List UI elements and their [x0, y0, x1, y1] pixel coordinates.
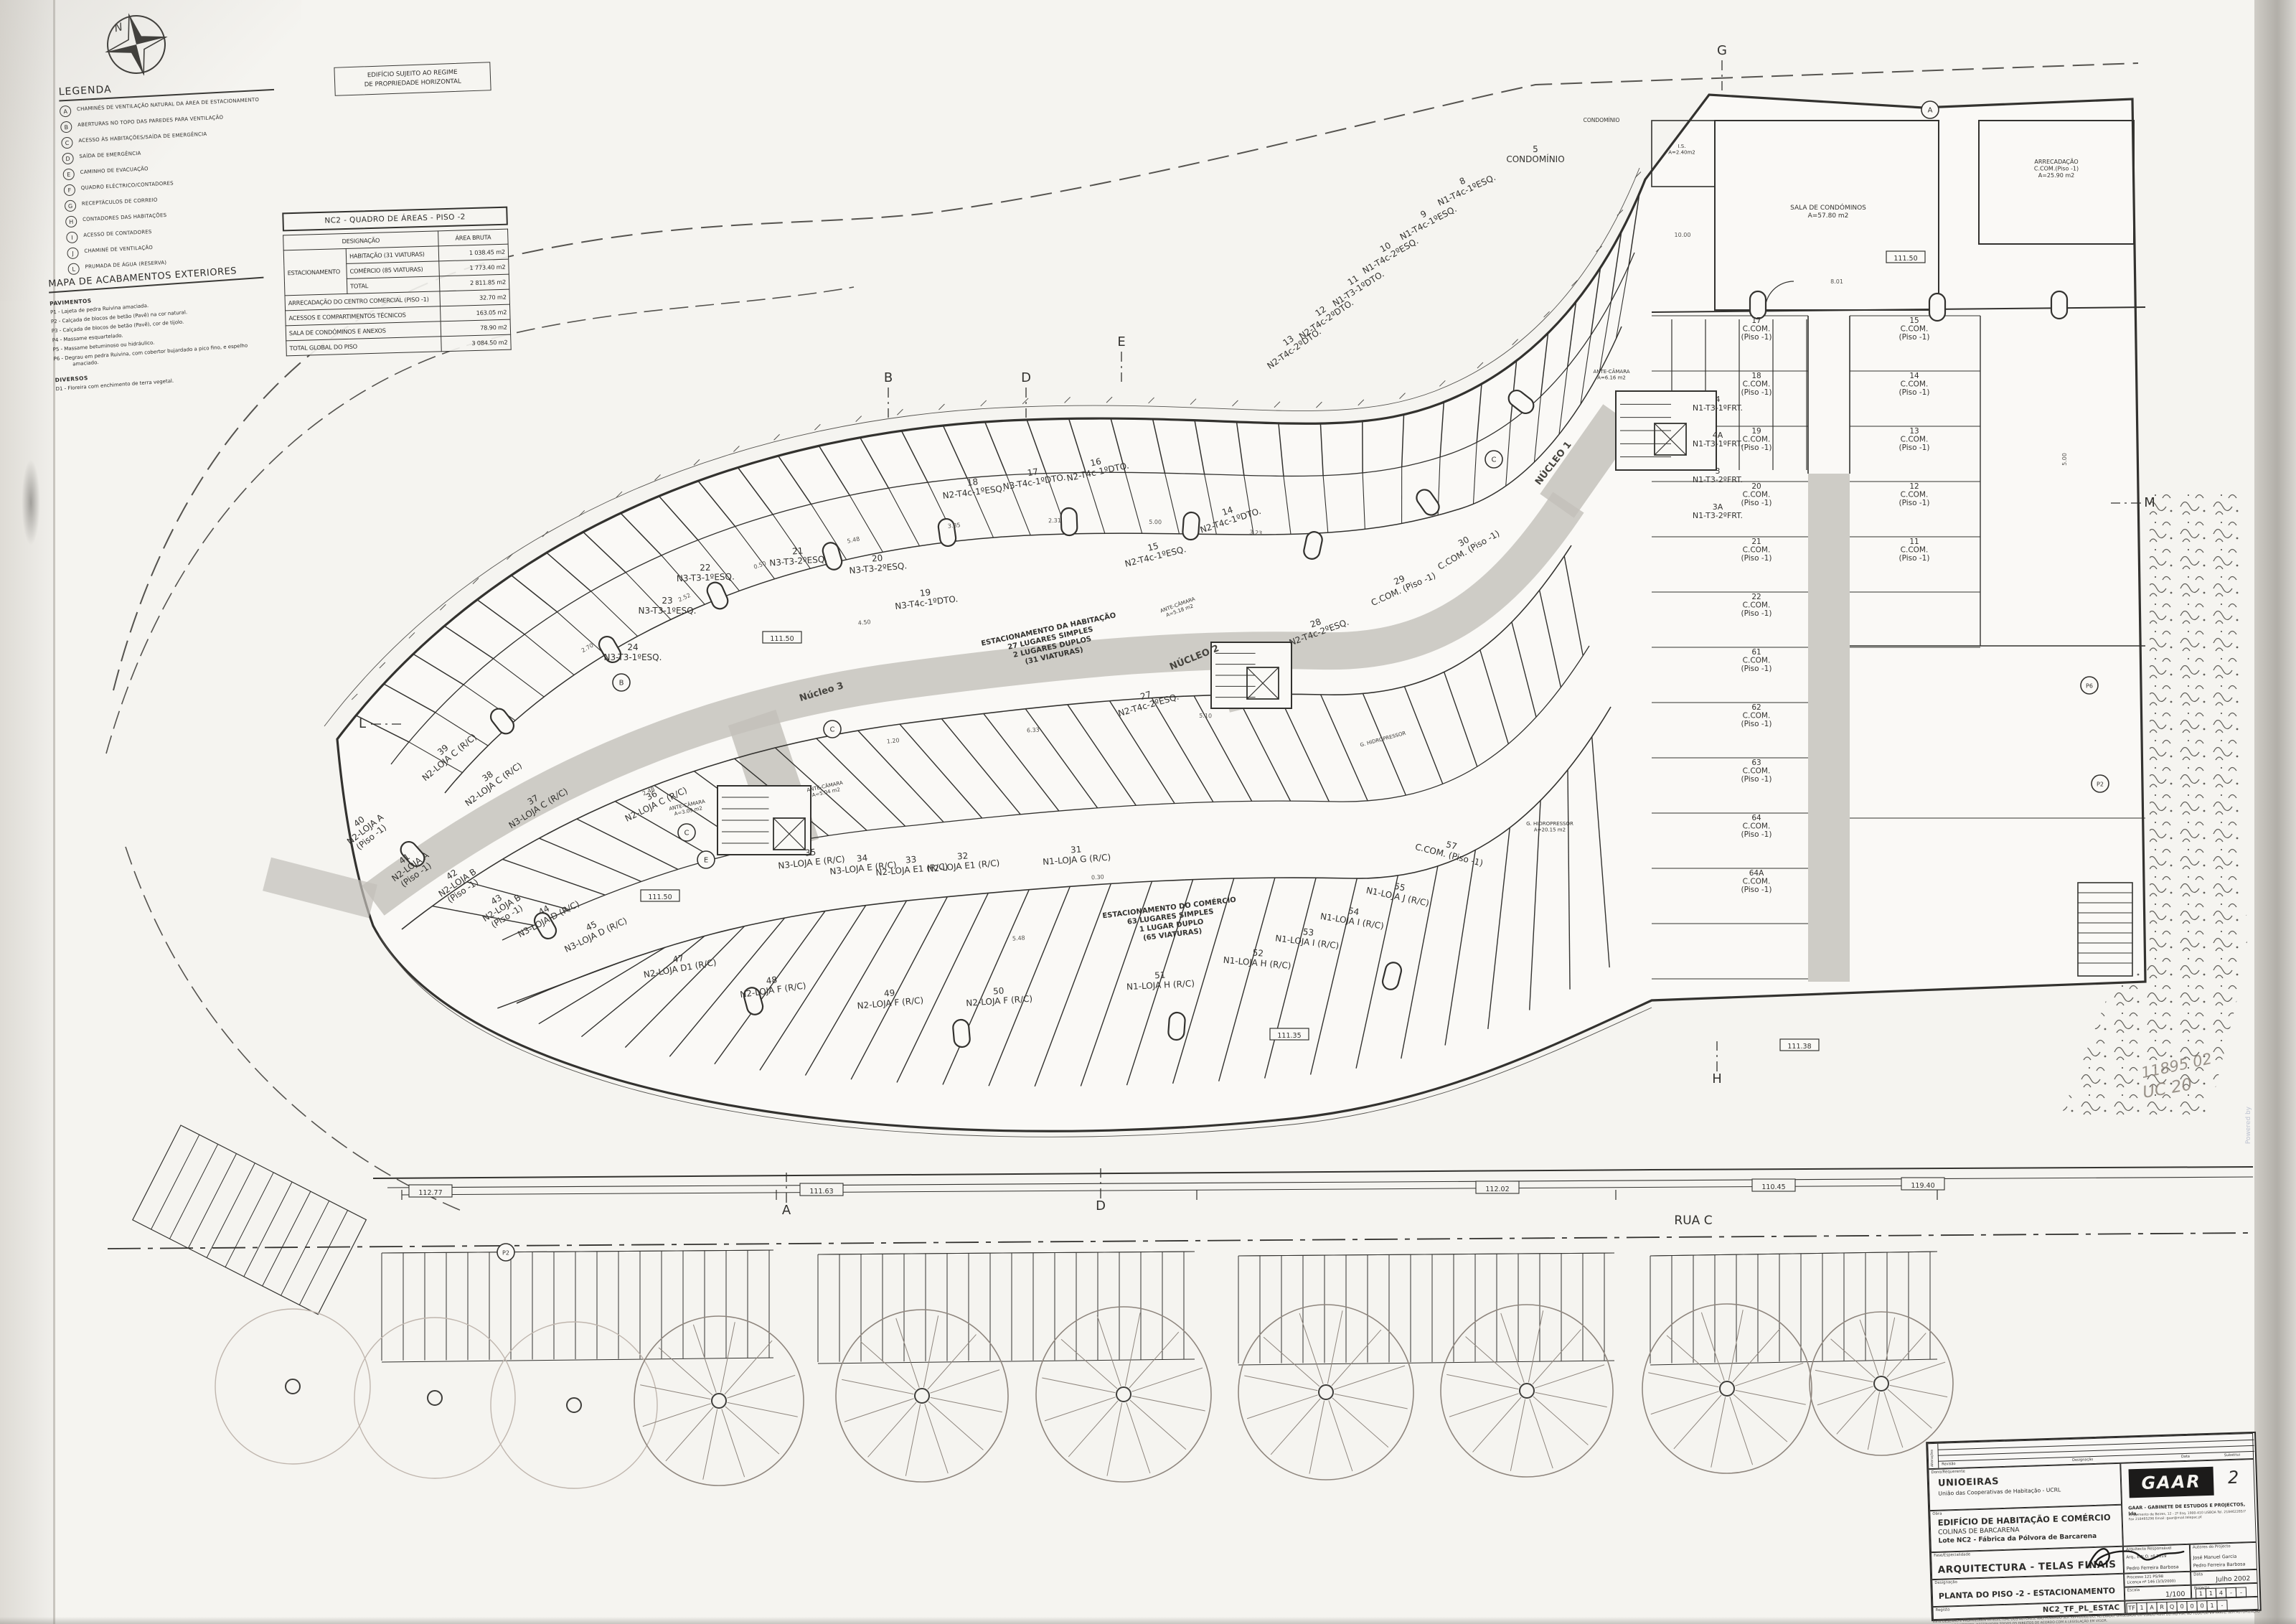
plan-line — [1244, 1376, 1317, 1391]
dimension-chain-tick — [1232, 400, 1238, 406]
dimension-chain-tick — [1149, 398, 1154, 403]
plan-line — [1327, 1310, 1342, 1384]
label-line: C.COM. — [1901, 436, 1929, 444]
ventilation-opening — [1750, 291, 1766, 319]
gaar-logo: GAAR — [2129, 1467, 2214, 1498]
tree — [491, 1322, 657, 1488]
legend-item-text: SAÍDA DE EMERGÊNCIA — [79, 149, 141, 159]
plan-line — [263, 1191, 311, 1286]
street-parking-row — [382, 1358, 773, 1362]
label-line: C.COM. — [1743, 380, 1771, 389]
tree — [1810, 1312, 1953, 1455]
dimension-value: 1.20 — [886, 737, 900, 745]
plan-line — [1329, 1400, 1352, 1471]
dimension-value: 3.23 — [1249, 529, 1263, 537]
property-regime-note: EDIFÍCIO SUJEITO AO REGIMEDE PROPRIEDADE… — [334, 62, 491, 95]
label-line: 19 — [1751, 427, 1761, 436]
label-line: L — [359, 716, 366, 731]
ventilation-opening — [2051, 291, 2067, 319]
label-line: (Piso -1) — [1741, 775, 1772, 784]
label-line: (Piso -1) — [1741, 554, 1772, 563]
label-line: (Piso -1) — [1741, 609, 1772, 618]
plan-line — [1883, 1318, 1894, 1375]
dimension-chain-tick — [507, 554, 513, 560]
street-name: RUA C — [1674, 1214, 1712, 1228]
author-1: José Manuel Garcia — [2193, 1553, 2256, 1561]
label-line: N3-T3-1ºESQ. — [604, 652, 662, 662]
plan-circle — [1238, 1305, 1413, 1480]
plan-line — [1667, 1336, 1721, 1383]
ventilation-opening — [1929, 294, 1945, 321]
label-line: 1.20 — [886, 737, 900, 745]
label-line: (Piso -1) — [1899, 333, 1930, 342]
plan-line — [1107, 1403, 1122, 1476]
grid-letter: D — [1096, 1198, 1106, 1214]
plan-line — [1042, 1378, 1115, 1393]
label-line: N2-T4c-2ºDTO. — [1265, 327, 1322, 371]
tree — [215, 1309, 370, 1464]
label-line: SALA DE CONDÓMINOS — [1790, 203, 1866, 212]
plan-line — [1868, 1392, 1879, 1450]
dimension-value: 3.85 — [947, 522, 961, 530]
label-line: 8.01 — [1830, 278, 1843, 285]
plan-line — [1473, 1397, 1522, 1452]
margin-stamp: 21 do Req/Reg nº — [2269, 998, 2277, 1054]
areas-cell: 1 773.40 m2 — [439, 259, 509, 276]
ventilation-opening — [952, 1019, 970, 1048]
dimension-value: 5.48 — [1012, 934, 1025, 942]
areas-cell: 2 811.85 m2 — [439, 274, 509, 291]
revision-col-data: Data — [2181, 1455, 2190, 1459]
ramp-walkway — [267, 874, 373, 901]
label-line: A=57.80 m2 — [1808, 212, 1849, 220]
label-line: N1-T4c-1ºESQ. — [1398, 204, 1459, 242]
plan-line — [931, 1397, 1002, 1412]
label-line: N1-T3-1ºDTO. — [1331, 269, 1386, 309]
areas-table-grid: DESIGNAÇÃOÁREA BRUTAESTACIONAMENTOHABITA… — [283, 229, 512, 357]
ventilation-opening — [1060, 508, 1077, 536]
plan-line — [1730, 1397, 1753, 1465]
label-line: CONDOMÍNIO — [1584, 117, 1620, 123]
label-line: 12 — [1909, 482, 1919, 491]
tree — [1642, 1304, 1812, 1473]
label-line: C.COM. — [1743, 878, 1771, 886]
legend-item-text: ABERTURAS NO TOPO DAS PAREDES PARA VENTI… — [77, 113, 224, 128]
dimension-value: 5.00 — [1149, 519, 1162, 526]
legend-item-key: A — [60, 105, 72, 118]
label-line: C.COM.(Piso -1) — [2034, 166, 2079, 172]
circled-ref-label: C — [1492, 456, 1497, 464]
plan-circle — [836, 1310, 1008, 1482]
label-line: C.COM. — [1743, 546, 1771, 555]
label-line: C.COM. — [1901, 380, 1929, 389]
plan-circle — [491, 1322, 657, 1488]
label-line: 10.00 — [1675, 232, 1691, 238]
plan-line — [722, 1409, 745, 1477]
firm-cell: GAAR 2 GAAR - GABINETE DE ESTUDOS E PROJ… — [2120, 1459, 2257, 1546]
areas-cell: 3 084.50 m2 — [441, 334, 512, 352]
plan-line — [1711, 1397, 1726, 1468]
dimension-chain-tick — [409, 632, 415, 638]
label-line: 111.63 — [809, 1188, 833, 1196]
street-parking-row — [818, 1359, 1195, 1363]
author-2: Pedro Ferreira Barbosa — [2193, 1561, 2257, 1569]
plan-circle — [1116, 1387, 1131, 1402]
street-dimension: 112.02 — [1485, 1186, 1509, 1193]
plan-line — [727, 1375, 795, 1398]
code-box: - — [2216, 1600, 2227, 1610]
label-line: C.COM. — [1743, 822, 1771, 831]
label-line: 119.40 — [1911, 1182, 1934, 1190]
dimension-chain-tick — [1635, 172, 1641, 178]
plan-line — [1125, 1313, 1140, 1386]
label-line: 31 — [1071, 844, 1082, 855]
plan-line — [1271, 1399, 1320, 1455]
designation-value: PLANTA DO PISO -2 - ESTACIONAMENTO — [1939, 1586, 2124, 1601]
dimension-chain-tick — [1022, 398, 1028, 404]
label-line: (Piso -1) — [1899, 499, 1930, 507]
plan-line — [1449, 1394, 1519, 1417]
stair-core — [1211, 642, 1291, 708]
label-line: A — [1928, 107, 1933, 115]
label-line: 5.00 — [2061, 453, 2068, 466]
plan-circle — [1036, 1307, 1211, 1482]
plan-line — [225, 1173, 273, 1267]
plan-line — [1533, 1397, 1588, 1445]
dimension-value: 5.00 — [2061, 453, 2068, 466]
plan-line — [1132, 1396, 1205, 1411]
plan-line — [1335, 1394, 1408, 1409]
label-line: 111.35 — [1277, 1032, 1301, 1040]
circled-ref-label: P6 — [2086, 683, 2093, 690]
tree — [634, 1316, 804, 1485]
street-edge — [1650, 1167, 2253, 1170]
label-line: N1-T4c-2ºESQ. — [1361, 236, 1421, 276]
label-line: C.COM. — [1743, 491, 1771, 499]
label-line: 5.48 — [1012, 934, 1025, 942]
drawing-sheet: { "sheet": { "north_label": "N", "horizo… — [0, 0, 2296, 1624]
areas-cell: ESTACIONAMENTO — [283, 248, 347, 295]
plan-line — [1332, 1330, 1381, 1386]
label-line: C — [684, 830, 690, 837]
label-line: P6 — [2086, 683, 2093, 690]
plan-line — [1130, 1400, 1186, 1450]
label-line: 17 — [1751, 316, 1761, 325]
label-line: (Piso -1) — [1741, 665, 1772, 673]
label-line: 4.50 — [857, 619, 871, 626]
authors-cell: Autores do Projecto José Manuel Garcia P… — [2190, 1542, 2257, 1572]
plan-line — [1045, 1397, 1116, 1421]
label-line: C.COM. — [1901, 546, 1929, 555]
plan-line — [728, 1402, 798, 1417]
label-line: (Piso -1) — [1741, 443, 1772, 452]
circled-ref-label: E — [704, 857, 708, 865]
finishes-panel: MAPA DE ACABAMENTOS EXTERIORES PAVIMENTO… — [48, 264, 270, 393]
areas-cell: ÁREA BRUTA — [438, 229, 509, 246]
room-label: ARRECADAÇÃOC.COM.(Piso -1)A=25.90 m2 — [2034, 158, 2079, 179]
scale-value: 1/100 — [2165, 1590, 2191, 1599]
plan-line — [299, 1210, 347, 1305]
plan-circle — [1874, 1376, 1888, 1391]
plan-line — [1530, 1399, 1553, 1468]
label-line: N1-T3-2ºFRT. — [1693, 475, 1743, 484]
stall-label: 5CONDOMÍNIO — [1506, 144, 1564, 164]
legend-item-key: D — [62, 153, 74, 165]
stair-core — [717, 786, 811, 855]
plan-line — [928, 1402, 983, 1450]
label-line: 50 — [993, 985, 1004, 996]
circled-ref-label: P2 — [2097, 782, 2104, 788]
street-edge — [373, 1170, 1650, 1178]
grid-letter: G — [1717, 43, 1727, 58]
dimension-chain-tick — [1190, 399, 1196, 405]
dimension-chain-tick — [1316, 402, 1322, 408]
legend-panel: LEGENDA ACHAMINÉS DE VENTILAÇÃO NATURAL … — [58, 75, 297, 275]
level-marker: 111.50 — [770, 635, 794, 643]
label-line: 23 — [662, 596, 672, 606]
circled-ref-label: P2 — [502, 1250, 509, 1257]
label-line: 111.50 — [1893, 255, 1917, 263]
label-line: C.COM. — [1743, 657, 1771, 665]
plan-line — [169, 1144, 217, 1239]
client-label: Dono/Requerente — [1931, 1470, 1965, 1475]
label-line: H — [1712, 1071, 1722, 1086]
plan-circle — [1642, 1304, 1812, 1473]
plan-line — [905, 1404, 920, 1476]
street-parking-row — [1238, 1253, 1614, 1256]
plan-line — [207, 1163, 255, 1258]
plan-line — [1648, 1373, 1718, 1387]
dimension-chain-tick — [1358, 400, 1364, 405]
plan-line — [1131, 1368, 1203, 1391]
plan-line — [188, 1153, 236, 1248]
label-line: Powered by — [2245, 1106, 2252, 1144]
label-line: 62 — [1751, 703, 1761, 712]
grid-letter: L — [359, 716, 366, 731]
street-edge-2 — [387, 1177, 2253, 1188]
plan-circle — [428, 1391, 442, 1405]
label-line: 3.23 — [1249, 529, 1263, 537]
plan-circle — [634, 1316, 804, 1485]
plan-line — [1334, 1366, 1405, 1389]
wing-corridor — [1808, 474, 1850, 982]
dimension-chain-tick — [1596, 246, 1602, 252]
access-ramp — [133, 1125, 367, 1315]
tree — [1036, 1307, 1211, 1482]
level-marker: 111.35 — [1277, 1032, 1301, 1040]
label-line: M — [2144, 495, 2155, 510]
label-line: 4A — [1713, 431, 1723, 440]
label-line: 63 — [1751, 759, 1761, 767]
signature — [2081, 1540, 2190, 1577]
plan-line — [1815, 1370, 1873, 1381]
street-dimension: 112.77 — [418, 1189, 442, 1197]
plan-line — [1247, 1395, 1318, 1419]
level-marker: 111.50 — [1893, 255, 1917, 263]
dimension-chain-tick — [1439, 380, 1445, 386]
dimension-chain-tick — [1106, 397, 1112, 403]
label-line: 21 — [792, 545, 804, 556]
north-label: N — [113, 20, 124, 34]
plan-line — [703, 1409, 717, 1480]
north-arrow: N — [100, 8, 173, 81]
plan-line — [1126, 1402, 1150, 1473]
label-line: 4 — [1716, 395, 1721, 404]
label-line: B — [884, 370, 893, 385]
level-marker: 111.50 — [648, 893, 672, 901]
label-line: N1-T4c-1ºESQ. — [1436, 172, 1497, 208]
label-line: C.COM. — [1743, 601, 1771, 610]
plan-line — [1068, 1401, 1118, 1457]
dimension-chain-tick — [897, 409, 903, 415]
street-parking-row — [382, 1250, 773, 1253]
dimension-chain-tick — [1572, 280, 1578, 286]
plan-line — [1528, 1310, 1543, 1382]
ventilation-opening — [1182, 512, 1200, 540]
areas-table: NC2 - QUADRO DE ÁREAS - PISO -2 DESIGNAÇ… — [282, 207, 511, 357]
dimension-chain-tick — [352, 694, 357, 700]
label-line: (Piso -1) — [1899, 554, 1930, 563]
dimension-value: 2.31 — [1048, 517, 1061, 525]
dimension-chain-tick — [542, 531, 548, 537]
label-line: (Piso -1) — [1741, 830, 1772, 839]
label-line: A — [782, 1203, 791, 1218]
legend-item-key: H — [65, 215, 77, 227]
label-line: N3-T3-1ºESQ. — [677, 571, 735, 583]
legend-item-text: ACESSO DE CONTADORES — [83, 227, 152, 238]
plan-line — [868, 1402, 917, 1457]
plan-line — [666, 1407, 713, 1461]
label-line: G — [1717, 43, 1727, 58]
dimension-chain-tick — [1477, 362, 1483, 368]
label-line: (Piso -1) — [1741, 720, 1772, 728]
label-line: C — [1492, 456, 1497, 464]
legend-item-text: PRUMADA DE ÁGUA (RESERVA) — [85, 258, 166, 270]
grid-letter: E — [1117, 334, 1125, 349]
authors-label: Autores do Projecto — [2193, 1544, 2231, 1550]
plan-line — [643, 1404, 711, 1427]
circled-ref-label: B — [619, 680, 624, 687]
label-line: I.S. — [1678, 144, 1686, 149]
plan-line — [1535, 1365, 1604, 1388]
street-dimension: 110.45 — [1761, 1183, 1785, 1191]
label-line: 3 — [1716, 466, 1721, 476]
revision-row-line — [1938, 1445, 2254, 1456]
revision-col-substitui: Substitui — [2224, 1453, 2240, 1458]
label-line: 112.77 — [418, 1189, 442, 1197]
label-line: 64A — [1749, 869, 1764, 878]
revision-vertical-label: Alterações — [1928, 1444, 1939, 1468]
grid-letter: M — [2144, 495, 2155, 510]
dimension-chain-tick — [938, 404, 944, 410]
revision-col-revisao: Revisão — [1942, 1462, 1956, 1467]
room-label: CONDOMÍNIO — [1584, 117, 1620, 123]
label-line: D — [1021, 370, 1031, 385]
grid-letter: H — [1712, 1071, 1722, 1086]
label-line: 18 — [1751, 372, 1761, 380]
label-line: A=2.40m2 — [1668, 149, 1695, 155]
plan-circle — [567, 1398, 581, 1412]
dimension-chain-tick — [981, 400, 987, 406]
label-line: 13 — [1909, 427, 1919, 436]
plan-line — [1466, 1337, 1520, 1386]
plan-line — [720, 1322, 735, 1392]
plan-line — [725, 1407, 779, 1454]
dimension-chain-tick — [1065, 397, 1071, 403]
legend-item-text: CONTADORES DAS HABITAÇÕES — [83, 211, 167, 222]
label-line: N1-T3-1ºFRT. — [1693, 403, 1743, 413]
label-line: 22 — [1751, 593, 1761, 601]
plan-line — [1061, 1339, 1117, 1389]
legend-item-text: QUADRO ELÉCTRICO/CONTADORES — [80, 179, 174, 191]
date-value: Julho 2002 — [2216, 1575, 2257, 1584]
label-line: 3.85 — [947, 522, 961, 530]
plan-circle — [215, 1309, 370, 1464]
tree — [836, 1310, 1008, 1482]
label-line: N1-T3-1ºFRT. — [1693, 439, 1743, 449]
plan-line — [1733, 1328, 1780, 1382]
label-line: 64 — [1751, 814, 1761, 822]
plan-line — [725, 1341, 772, 1394]
label-line: (Piso -1) — [1741, 388, 1772, 397]
circled-ref-label: C — [830, 726, 835, 734]
plan-line — [1728, 1310, 1743, 1380]
plan-line — [1535, 1392, 1607, 1407]
dimension-chain-tick — [1274, 402, 1280, 408]
tree — [1238, 1305, 1413, 1480]
plan-line — [1309, 1401, 1325, 1474]
areas-cell: 163.05 m2 — [440, 304, 510, 321]
label-line: (Piso -1) — [1899, 443, 1930, 452]
signature-stroke — [2087, 1546, 2184, 1568]
label-line: ANTE-CÂMARA — [1593, 368, 1629, 375]
legend-items: ACHAMINÉS DE VENTILAÇÃO NATURAL DA ÁREA … — [60, 94, 298, 275]
level-marker: 111.38 — [1787, 1043, 1811, 1051]
margin-stamp: Powered by — [2245, 1106, 2252, 1144]
plan-line — [844, 1399, 914, 1422]
label-line: 14 — [1909, 372, 1919, 380]
plan-line — [151, 1135, 199, 1229]
plan-line — [281, 1201, 329, 1295]
label-line: 21 do Req/Reg nº — [2269, 998, 2277, 1054]
label-line: G. HIDROPRESSOR — [1526, 821, 1573, 827]
label-line: 6/2002 — [2274, 1566, 2282, 1591]
plan-line — [1890, 1385, 1947, 1397]
legend-item-key: I — [66, 231, 78, 243]
legend-item-key: F — [64, 184, 76, 197]
label-line: 61 — [1751, 648, 1761, 657]
label-line: C.COM. — [1743, 767, 1771, 776]
legend-item-key: J — [67, 247, 79, 259]
plan-polygon — [129, 8, 166, 44]
label-line: 3A — [1713, 502, 1723, 512]
plan-line — [896, 1318, 919, 1388]
dimension-value: 6.33 — [1027, 727, 1040, 734]
dimension-value: 8.01 — [1830, 278, 1843, 285]
dimension-chain-tick — [1617, 210, 1623, 215]
label-line: C.COM. — [1743, 712, 1771, 721]
plan-line — [1446, 1374, 1518, 1389]
legend-item-text: CAMINHO DE EVACUAÇÃO — [80, 164, 149, 175]
label-line: (Piso -1) — [1899, 388, 1930, 397]
label-line: 110.45 — [1761, 1183, 1785, 1191]
scale-label: Escala — [2127, 1588, 2140, 1593]
label-line: D — [1096, 1198, 1106, 1214]
label-line: 5.10 — [1199, 713, 1212, 720]
client-cell: Dono/Requerente UNIOEIRAS União das Coop… — [1928, 1463, 2122, 1511]
dimension-value: 5.10 — [1199, 713, 1212, 720]
room-label: ANTE-CÂMARAA=6.16 m2 — [1593, 368, 1629, 380]
